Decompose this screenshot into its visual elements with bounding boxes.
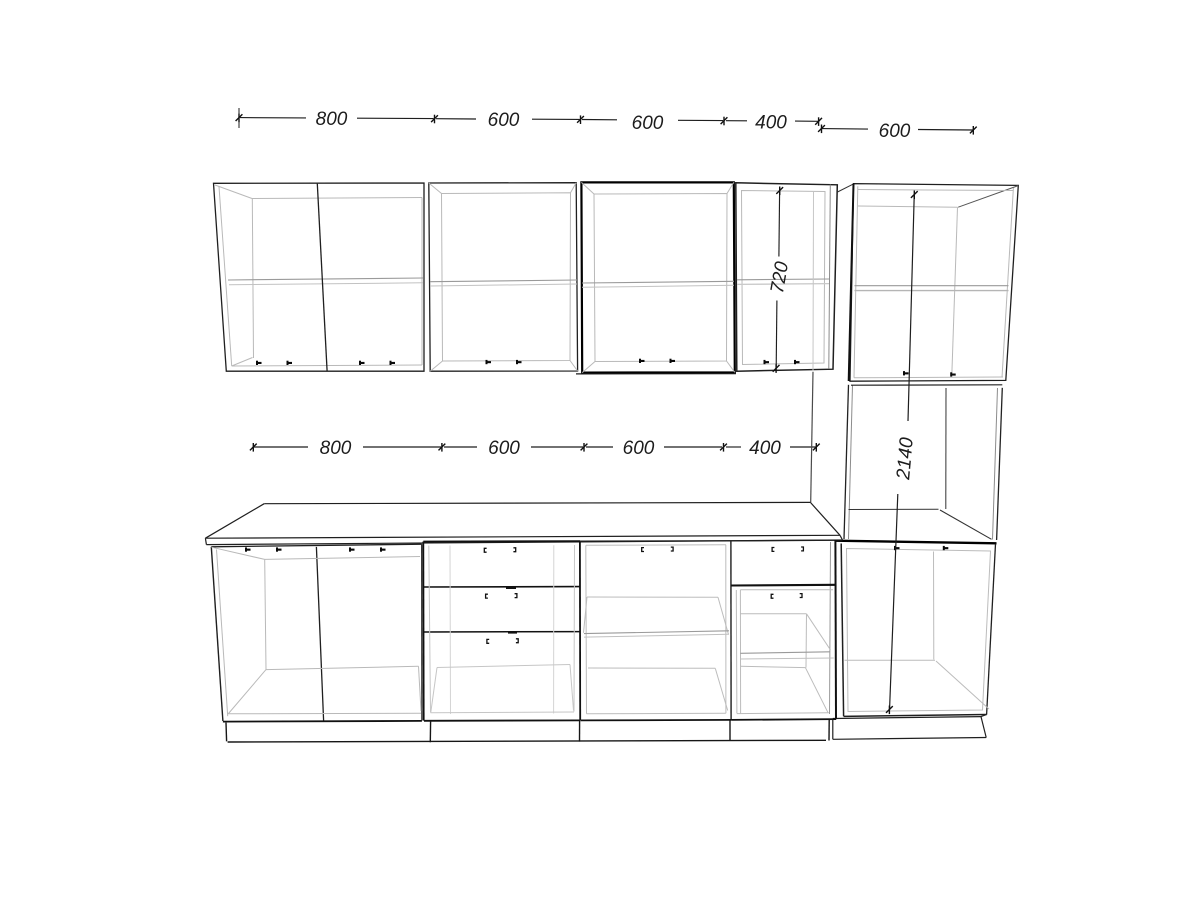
svg-text:600: 600: [488, 438, 520, 459]
svg-text:800: 800: [320, 438, 352, 459]
svg-text:600: 600: [632, 113, 664, 134]
svg-text:2140: 2140: [893, 436, 918, 481]
svg-text:600: 600: [623, 438, 655, 459]
svg-text:600: 600: [879, 121, 911, 142]
svg-text:800: 800: [316, 109, 348, 130]
svg-text:400: 400: [749, 438, 781, 459]
svg-text:600: 600: [488, 110, 520, 131]
svg-text:400: 400: [755, 112, 787, 133]
